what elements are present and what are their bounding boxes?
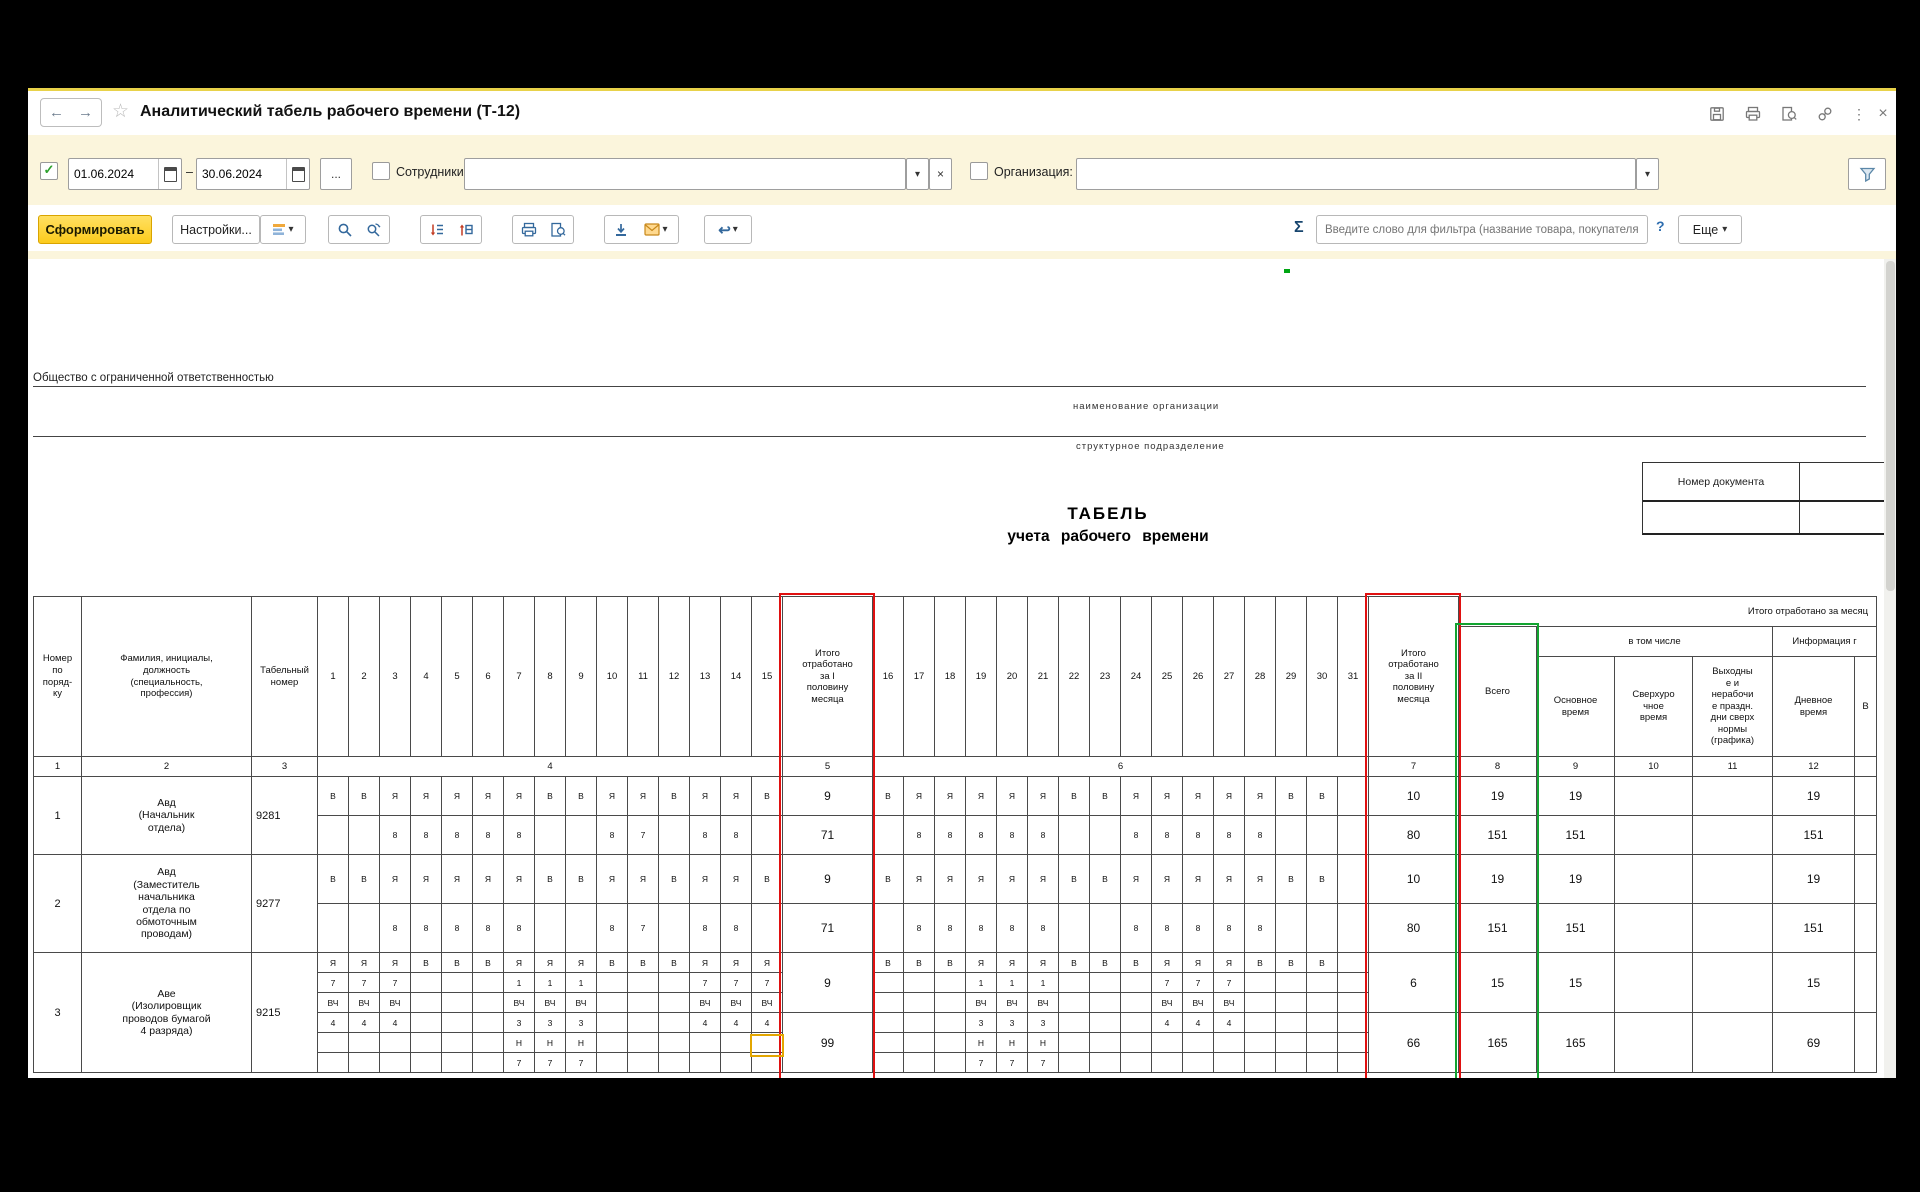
day-cell[interactable]: В: [1245, 953, 1276, 973]
header-day[interactable]: 2: [349, 597, 380, 757]
day-cell[interactable]: Я: [690, 777, 721, 816]
header-name[interactable]: Фамилия, инициалы, должность (специально…: [82, 597, 252, 757]
day-cell[interactable]: 4: [752, 1013, 783, 1033]
day-cell[interactable]: [1276, 1053, 1307, 1073]
day-cell[interactable]: 1: [997, 973, 1028, 993]
day-cell[interactable]: 1: [504, 973, 535, 993]
day-cell[interactable]: Я: [935, 855, 966, 904]
day-cell[interactable]: Я: [442, 777, 473, 816]
header-total-second-half[interactable]: Итого отработано за II половину месяца: [1369, 597, 1459, 757]
day-cell[interactable]: Я: [1028, 953, 1059, 973]
day-cell[interactable]: [1307, 1013, 1338, 1033]
day-cell[interactable]: В: [935, 953, 966, 973]
day-cell[interactable]: 4: [318, 1013, 349, 1033]
day-cell[interactable]: В: [597, 953, 628, 973]
day-cell[interactable]: [1245, 993, 1276, 1013]
day-cell[interactable]: [1276, 993, 1307, 1013]
date-from-field[interactable]: [68, 158, 182, 190]
day-cell[interactable]: Н: [504, 1033, 535, 1053]
overtime-cell[interactable]: [1615, 855, 1693, 904]
day-cell[interactable]: 8: [473, 816, 504, 855]
day-cell[interactable]: [873, 816, 904, 855]
day-cell[interactable]: Я: [1152, 855, 1183, 904]
day-cell[interactable]: Я: [721, 855, 752, 904]
day-cell[interactable]: 7: [628, 816, 659, 855]
day-cell[interactable]: В: [1059, 953, 1090, 973]
header-day[interactable]: 13: [690, 597, 721, 757]
day-cell[interactable]: Н: [566, 1033, 597, 1053]
day-cell[interactable]: Я: [1183, 953, 1214, 973]
day-cell[interactable]: В: [1276, 953, 1307, 973]
weekend-cell[interactable]: [1693, 953, 1773, 1013]
day-cell[interactable]: 7: [535, 1053, 566, 1073]
header-day[interactable]: 3: [380, 597, 411, 757]
day-cell[interactable]: [1307, 816, 1338, 855]
day-cell[interactable]: 8: [935, 816, 966, 855]
row-number[interactable]: 1: [34, 777, 82, 855]
total-first-half-cell[interactable]: 9: [783, 777, 873, 816]
colnum[interactable]: 2: [82, 757, 252, 777]
day-cell[interactable]: [380, 1033, 411, 1053]
day-cell[interactable]: [935, 993, 966, 1013]
vsego-cell[interactable]: 151: [1459, 904, 1537, 953]
vsego-cell[interactable]: 165: [1459, 1013, 1537, 1073]
day-cell[interactable]: Я: [473, 777, 504, 816]
find-button[interactable]: [328, 215, 361, 244]
day-cell[interactable]: [628, 1033, 659, 1053]
day-cell[interactable]: ВЧ: [997, 993, 1028, 1013]
day-cell[interactable]: В: [1059, 777, 1090, 816]
header-day[interactable]: 8: [535, 597, 566, 757]
day-cell[interactable]: [1059, 1013, 1090, 1033]
header-day[interactable]: 15: [752, 597, 783, 757]
day-cell[interactable]: Я: [904, 855, 935, 904]
day-cell[interactable]: Я: [597, 855, 628, 904]
day-cell[interactable]: В: [349, 777, 380, 816]
day-cell[interactable]: Я: [966, 953, 997, 973]
day-cell[interactable]: 8: [904, 816, 935, 855]
weekend-cell[interactable]: [1693, 855, 1773, 904]
colnum[interactable]: 3: [252, 757, 318, 777]
colnum[interactable]: 8: [1459, 757, 1537, 777]
day-cell[interactable]: [597, 973, 628, 993]
day-cell[interactable]: [873, 1013, 904, 1033]
day-cell[interactable]: В: [566, 855, 597, 904]
day-cell[interactable]: В: [318, 855, 349, 904]
day-cell[interactable]: ВЧ: [1183, 993, 1214, 1013]
day-cell[interactable]: [721, 1033, 752, 1053]
day-cell[interactable]: 8: [690, 904, 721, 953]
header-day[interactable]: 20: [997, 597, 1028, 757]
day-cell[interactable]: [1121, 1013, 1152, 1033]
day-cell[interactable]: 8: [380, 904, 411, 953]
day-cell[interactable]: [535, 816, 566, 855]
day-cell[interactable]: Я: [997, 855, 1028, 904]
colnum[interactable]: 1: [34, 757, 82, 777]
header-day[interactable]: 9: [566, 597, 597, 757]
organization-field[interactable]: [1076, 158, 1636, 190]
day-cell[interactable]: ВЧ: [966, 993, 997, 1013]
day-cell[interactable]: Я: [628, 777, 659, 816]
colnum[interactable]: 5: [783, 757, 873, 777]
day-cell[interactable]: [1059, 904, 1090, 953]
day-cell[interactable]: [318, 1053, 349, 1073]
day-cell[interactable]: ВЧ: [349, 993, 380, 1013]
day-cell[interactable]: [411, 973, 442, 993]
day-cell[interactable]: В: [411, 953, 442, 973]
expand-groups-button[interactable]: [450, 215, 482, 244]
day-cell[interactable]: [1338, 1053, 1369, 1073]
day-cell[interactable]: В: [873, 855, 904, 904]
day-cell[interactable]: Я: [690, 953, 721, 973]
day-cell[interactable]: 8: [1214, 816, 1245, 855]
day-cell[interactable]: [473, 973, 504, 993]
main-time-cell[interactable]: 19: [1537, 777, 1615, 816]
day-cell[interactable]: [349, 904, 380, 953]
day-cell[interactable]: 1: [1028, 973, 1059, 993]
day-cell[interactable]: Я: [904, 777, 935, 816]
day-cell[interactable]: 8: [1183, 904, 1214, 953]
header-day[interactable]: 31: [1338, 597, 1369, 757]
vsego-cell[interactable]: 15: [1459, 953, 1537, 1013]
day-cell[interactable]: 7: [721, 973, 752, 993]
day-cell[interactable]: [1307, 904, 1338, 953]
main-time-cell[interactable]: 151: [1537, 904, 1615, 953]
day-cell[interactable]: В: [318, 777, 349, 816]
more-button[interactable]: Еще ▾: [1678, 215, 1742, 244]
colnum[interactable]: 6: [873, 757, 1369, 777]
forward-button[interactable]: →: [70, 98, 102, 127]
total-second-half-cell[interactable]: 6: [1369, 953, 1459, 1013]
day-cell[interactable]: [1245, 1033, 1276, 1053]
day-cell[interactable]: Я: [504, 953, 535, 973]
header-tab-number[interactable]: Табельный номер: [252, 597, 318, 757]
employee-name[interactable]: Аве (Изолировщик проводов бумагой 4 разр…: [82, 953, 252, 1073]
day-cell[interactable]: 3: [1028, 1013, 1059, 1033]
day-cell[interactable]: [659, 973, 690, 993]
day-cell[interactable]: 3: [997, 1013, 1028, 1033]
day-cell[interactable]: [1121, 1053, 1152, 1073]
day-cell[interactable]: 8: [997, 816, 1028, 855]
weekend-cell[interactable]: [1693, 1013, 1773, 1073]
day-cell[interactable]: Я: [1152, 953, 1183, 973]
extra-cell[interactable]: [1855, 855, 1877, 904]
preview-icon[interactable]: [1778, 103, 1800, 125]
day-cell[interactable]: [442, 993, 473, 1013]
colnum[interactable]: 9: [1537, 757, 1615, 777]
employees-checkbox[interactable]: [372, 162, 390, 180]
header-day[interactable]: 23: [1090, 597, 1121, 757]
day-time-cell[interactable]: 15: [1773, 953, 1855, 1013]
day-cell[interactable]: 7: [966, 1053, 997, 1073]
day-cell[interactable]: [411, 1053, 442, 1073]
colnum[interactable]: 4: [318, 757, 783, 777]
send-email-button[interactable]: ▾: [634, 215, 679, 244]
header-vsego[interactable]: Всего: [1459, 627, 1537, 757]
header-day[interactable]: 22: [1059, 597, 1090, 757]
generate-button[interactable]: Сформировать: [38, 215, 152, 244]
day-cell[interactable]: В: [1090, 953, 1121, 973]
day-cell[interactable]: [1276, 904, 1307, 953]
header-day[interactable]: 19: [966, 597, 997, 757]
day-cell[interactable]: 3: [966, 1013, 997, 1033]
day-cell[interactable]: [411, 1013, 442, 1033]
organization-dropdown-button[interactable]: ▾: [1636, 158, 1659, 190]
header-extra[interactable]: В: [1855, 657, 1877, 757]
day-cell[interactable]: [1214, 1033, 1245, 1053]
day-cell[interactable]: [935, 1013, 966, 1033]
day-cell[interactable]: [752, 904, 783, 953]
day-cell[interactable]: Я: [1028, 855, 1059, 904]
employees-field[interactable]: [464, 158, 906, 190]
day-cell[interactable]: Я: [1183, 777, 1214, 816]
date-to-field[interactable]: [196, 158, 310, 190]
day-cell[interactable]: В: [873, 953, 904, 973]
day-cell[interactable]: В: [628, 953, 659, 973]
day-cell[interactable]: В: [659, 953, 690, 973]
link-icon[interactable]: [1814, 103, 1836, 125]
day-cell[interactable]: [752, 1033, 783, 1053]
day-cell[interactable]: [721, 1053, 752, 1073]
day-cell[interactable]: В: [752, 855, 783, 904]
day-cell[interactable]: 8: [1245, 816, 1276, 855]
day-cell[interactable]: 8: [1152, 816, 1183, 855]
collapse-groups-button[interactable]: [420, 215, 453, 244]
day-cell[interactable]: 8: [442, 904, 473, 953]
day-cell[interactable]: [628, 1013, 659, 1033]
weekend-cell[interactable]: [1693, 904, 1773, 953]
day-cell[interactable]: 8: [1245, 904, 1276, 953]
day-cell[interactable]: Я: [997, 777, 1028, 816]
day-cell[interactable]: [1214, 1053, 1245, 1073]
day-cell[interactable]: [1338, 855, 1369, 904]
day-cell[interactable]: ВЧ: [1028, 993, 1059, 1013]
organization-input[interactable]: [1077, 159, 1635, 189]
weekend-cell[interactable]: [1693, 816, 1773, 855]
main-time-cell[interactable]: 19: [1537, 855, 1615, 904]
day-cell[interactable]: 1: [566, 973, 597, 993]
day-cell[interactable]: [904, 973, 935, 993]
date-from-input[interactable]: [69, 159, 158, 189]
day-cell[interactable]: [1090, 993, 1121, 1013]
day-cell[interactable]: Я: [473, 855, 504, 904]
day-cell[interactable]: Я: [752, 953, 783, 973]
day-cell[interactable]: [1276, 973, 1307, 993]
total-first-half-cell[interactable]: 9: [783, 953, 873, 1013]
day-cell[interactable]: [473, 1053, 504, 1073]
date-to-input[interactable]: [197, 159, 286, 189]
day-cell[interactable]: [597, 1053, 628, 1073]
extra-cell[interactable]: [1855, 1013, 1877, 1073]
day-cell[interactable]: 8: [504, 904, 535, 953]
day-cell[interactable]: Я: [628, 855, 659, 904]
header-day[interactable]: 18: [935, 597, 966, 757]
day-cell[interactable]: В: [566, 777, 597, 816]
settings-button[interactable]: Настройки...: [172, 215, 260, 244]
day-cell[interactable]: Я: [1245, 855, 1276, 904]
employees-dropdown-button[interactable]: ▾: [906, 158, 929, 190]
day-cell[interactable]: 7: [628, 904, 659, 953]
day-cell[interactable]: [904, 1033, 935, 1053]
day-cell[interactable]: 8: [1214, 904, 1245, 953]
header-overtime[interactable]: Сверхуро чное время: [1615, 657, 1693, 757]
day-cell[interactable]: ВЧ: [535, 993, 566, 1013]
day-cell[interactable]: 8: [997, 904, 1028, 953]
day-cell[interactable]: [380, 1053, 411, 1073]
header-main-time[interactable]: Основное время: [1537, 657, 1615, 757]
day-cell[interactable]: 4: [690, 1013, 721, 1033]
day-cell[interactable]: [904, 993, 935, 1013]
day-cell[interactable]: 7: [504, 1053, 535, 1073]
day-cell[interactable]: Я: [380, 855, 411, 904]
day-cell[interactable]: В: [1121, 953, 1152, 973]
timesheet-table[interactable]: Номер по поряд- куФамилия, инициалы, дол…: [33, 596, 1877, 1073]
period-checkbox[interactable]: ✓: [40, 162, 58, 180]
day-cell[interactable]: [935, 1033, 966, 1053]
header-day-time[interactable]: Дневное время: [1773, 657, 1855, 757]
close-icon[interactable]: ×: [1872, 103, 1894, 125]
day-cell[interactable]: В: [752, 777, 783, 816]
day-cell[interactable]: [659, 1013, 690, 1033]
day-cell[interactable]: [1059, 1053, 1090, 1073]
overtime-cell[interactable]: [1615, 953, 1693, 1013]
day-cell[interactable]: [628, 993, 659, 1013]
day-cell[interactable]: [1059, 973, 1090, 993]
header-including[interactable]: в том числе: [1537, 627, 1773, 657]
header-day[interactable]: 12: [659, 597, 690, 757]
day-cell[interactable]: Я: [966, 855, 997, 904]
extra-cell[interactable]: [1855, 816, 1877, 855]
day-cell[interactable]: [1307, 1053, 1338, 1073]
day-cell[interactable]: В: [349, 855, 380, 904]
day-cell[interactable]: ВЧ: [752, 993, 783, 1013]
day-cell[interactable]: Я: [721, 953, 752, 973]
day-cell[interactable]: [659, 1033, 690, 1053]
main-time-cell[interactable]: 165: [1537, 1013, 1615, 1073]
day-cell[interactable]: В: [1090, 855, 1121, 904]
day-cell[interactable]: 4: [1183, 1013, 1214, 1033]
history-button[interactable]: ↩ ▾: [704, 215, 752, 244]
day-cell[interactable]: 4: [1152, 1013, 1183, 1033]
day-cell[interactable]: ВЧ: [504, 993, 535, 1013]
day-cell[interactable]: [1090, 904, 1121, 953]
day-cell[interactable]: [873, 1053, 904, 1073]
header-day[interactable]: 21: [1028, 597, 1059, 757]
day-cell[interactable]: 8: [1183, 816, 1214, 855]
overtime-cell[interactable]: [1615, 816, 1693, 855]
total-first-half-cell[interactable]: 71: [783, 904, 873, 953]
day-cell[interactable]: Я: [1183, 855, 1214, 904]
header-day[interactable]: 24: [1121, 597, 1152, 757]
vsego-cell[interactable]: 19: [1459, 855, 1537, 904]
day-cell[interactable]: [659, 1053, 690, 1073]
quick-filter-field[interactable]: [1316, 215, 1648, 244]
header-month-total-banner[interactable]: Итого отработано за месяц: [1459, 597, 1877, 627]
day-cell[interactable]: ВЧ: [1152, 993, 1183, 1013]
day-cell[interactable]: [318, 904, 349, 953]
day-cell[interactable]: Я: [411, 855, 442, 904]
calendar-icon[interactable]: [158, 159, 181, 189]
day-cell[interactable]: 7: [1152, 973, 1183, 993]
day-cell[interactable]: В: [535, 855, 566, 904]
day-cell[interactable]: ВЧ: [1214, 993, 1245, 1013]
day-cell[interactable]: Я: [566, 953, 597, 973]
day-cell[interactable]: [442, 973, 473, 993]
kebab-icon[interactable]: ⋮: [1848, 103, 1870, 125]
period-options-button[interactable]: ...: [320, 158, 352, 190]
overtime-cell[interactable]: [1615, 777, 1693, 816]
weekend-cell[interactable]: [1693, 777, 1773, 816]
day-cell[interactable]: [873, 993, 904, 1013]
day-cell[interactable]: Я: [1121, 855, 1152, 904]
day-cell[interactable]: В: [1307, 953, 1338, 973]
day-cell[interactable]: Я: [1028, 777, 1059, 816]
day-cell[interactable]: [904, 1053, 935, 1073]
day-cell[interactable]: 7: [349, 973, 380, 993]
day-cell[interactable]: [1245, 1053, 1276, 1073]
employee-name[interactable]: Авд (Начальник отдела): [82, 777, 252, 855]
total-second-half-cell[interactable]: 80: [1369, 904, 1459, 953]
header-day[interactable]: 16: [873, 597, 904, 757]
day-cell[interactable]: Н: [1028, 1033, 1059, 1053]
day-cell[interactable]: [1276, 816, 1307, 855]
day-cell[interactable]: [349, 1033, 380, 1053]
day-cell[interactable]: 7: [1183, 973, 1214, 993]
day-cell[interactable]: [1090, 1033, 1121, 1053]
print-icon[interactable]: [1742, 103, 1764, 125]
employee-tab-number[interactable]: 9215: [252, 953, 318, 1073]
day-cell[interactable]: 8: [411, 816, 442, 855]
day-cell[interactable]: [935, 1053, 966, 1073]
day-cell[interactable]: [1338, 816, 1369, 855]
day-cell[interactable]: 8: [442, 816, 473, 855]
day-cell[interactable]: 7: [997, 1053, 1028, 1073]
employee-tab-number[interactable]: 9281: [252, 777, 318, 855]
day-cell[interactable]: В: [535, 777, 566, 816]
day-cell[interactable]: 7: [1214, 973, 1245, 993]
header-day[interactable]: 5: [442, 597, 473, 757]
day-cell[interactable]: 8: [1152, 904, 1183, 953]
day-cell[interactable]: [566, 816, 597, 855]
day-cell[interactable]: ВЧ: [721, 993, 752, 1013]
extra-cell[interactable]: [1855, 904, 1877, 953]
day-cell[interactable]: [566, 904, 597, 953]
day-cell[interactable]: [318, 1033, 349, 1053]
day-cell[interactable]: 8: [1028, 904, 1059, 953]
day-cell[interactable]: ВЧ: [690, 993, 721, 1013]
print-button[interactable]: [512, 215, 545, 244]
total-second-half-cell[interactable]: 10: [1369, 855, 1459, 904]
day-cell[interactable]: [904, 1013, 935, 1033]
total-first-half-cell[interactable]: 9: [783, 855, 873, 904]
day-cell[interactable]: Я: [1152, 777, 1183, 816]
day-cell[interactable]: [752, 1053, 783, 1073]
day-cell[interactable]: [1059, 816, 1090, 855]
favorite-star-icon[interactable]: ☆: [112, 100, 129, 123]
day-cell[interactable]: 7: [1028, 1053, 1059, 1073]
print-preview-button[interactable]: [542, 215, 574, 244]
day-cell[interactable]: [597, 1033, 628, 1053]
day-cell[interactable]: В: [1307, 777, 1338, 816]
day-cell[interactable]: [1338, 777, 1369, 816]
day-cell[interactable]: 8: [1121, 816, 1152, 855]
day-cell[interactable]: ВЧ: [566, 993, 597, 1013]
day-cell[interactable]: [628, 973, 659, 993]
day-cell[interactable]: Я: [1214, 953, 1245, 973]
day-cell[interactable]: 8: [1028, 816, 1059, 855]
extra-cell[interactable]: [1855, 777, 1877, 816]
day-cell[interactable]: [349, 1053, 380, 1073]
